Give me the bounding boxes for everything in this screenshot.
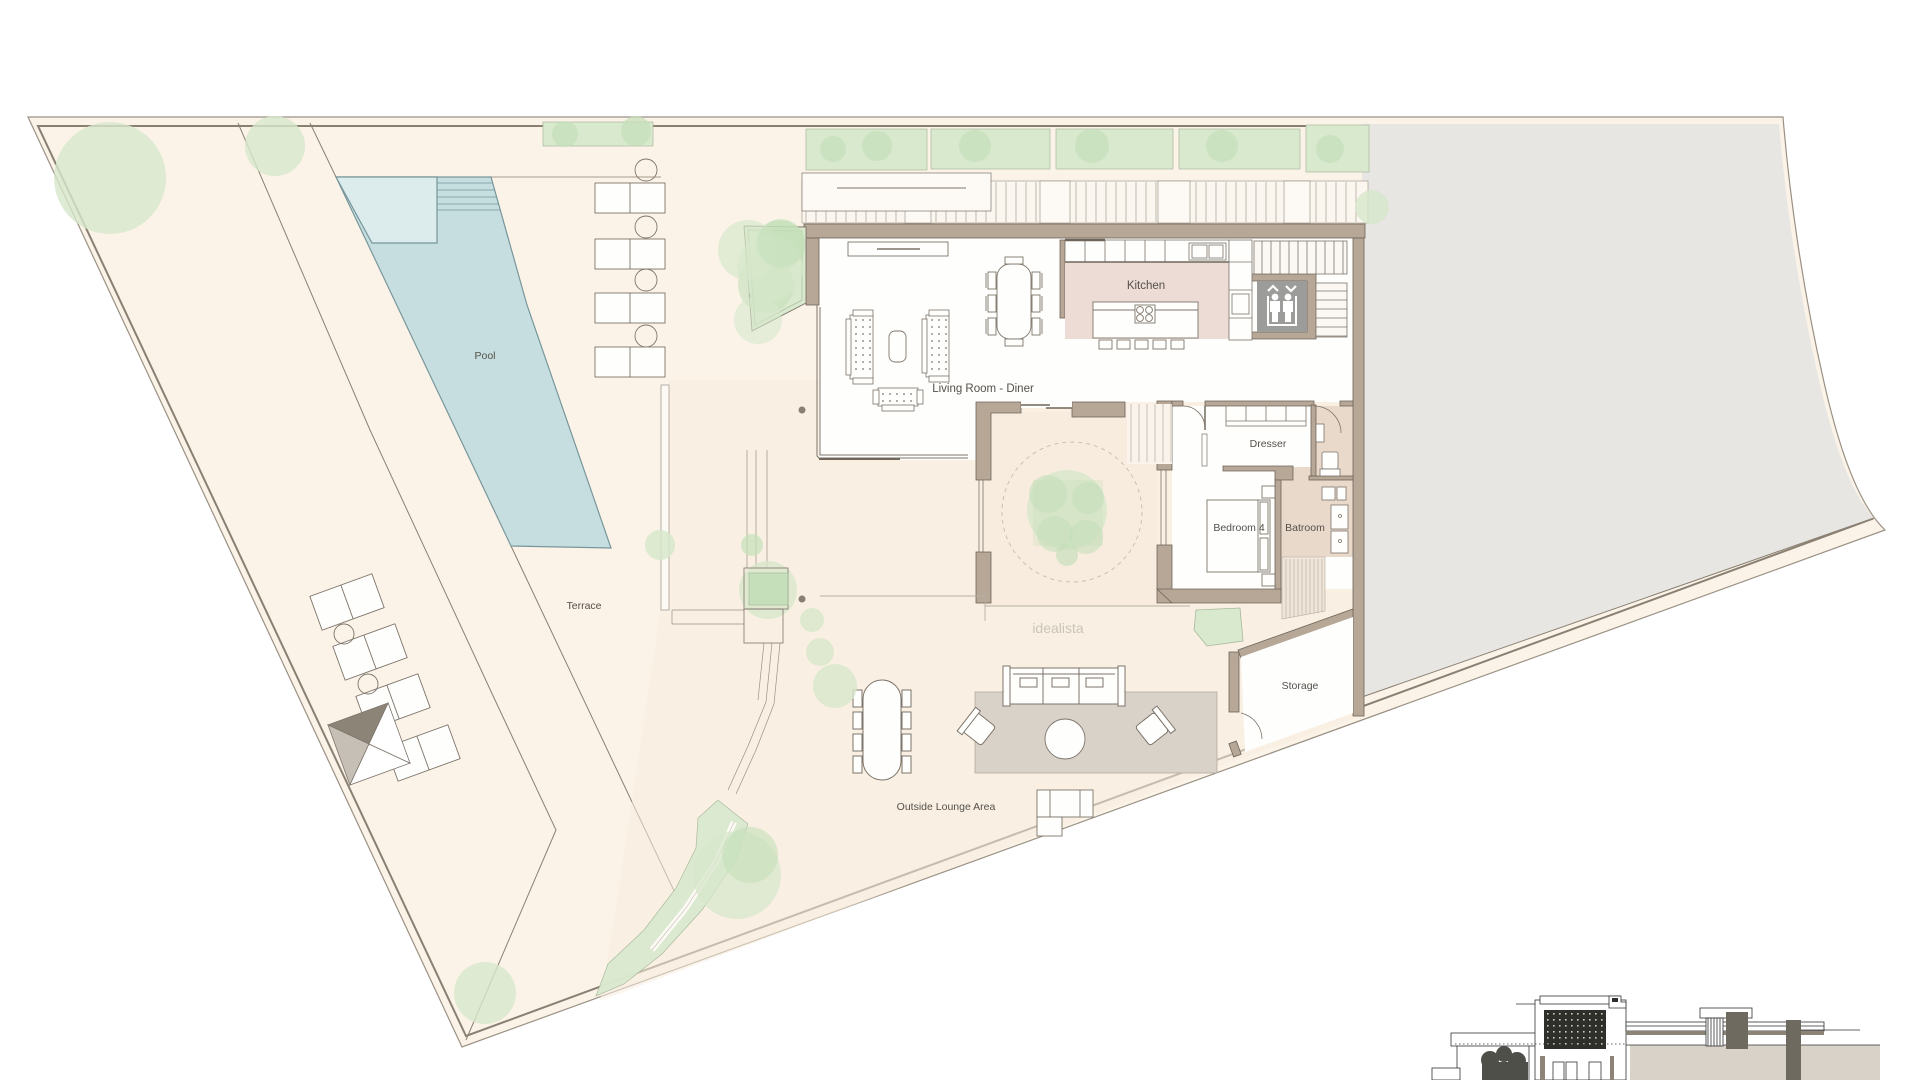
svg-text:Outside Lounge Area: Outside Lounge Area [897,801,996,813]
svg-text:Batroom: Batroom [1285,522,1325,534]
svg-text:Terrace: Terrace [566,600,601,612]
svg-text:Living Room - Diner: Living Room - Diner [932,383,1034,395]
svg-text:Bedroom 4: Bedroom 4 [1213,522,1265,534]
svg-text:Dresser: Dresser [1250,438,1287,450]
svg-text:idealista: idealista [1032,620,1084,636]
svg-text:Pool: Pool [474,350,495,362]
svg-text:Kitchen: Kitchen [1127,280,1165,292]
svg-text:Storage: Storage [1282,680,1319,692]
